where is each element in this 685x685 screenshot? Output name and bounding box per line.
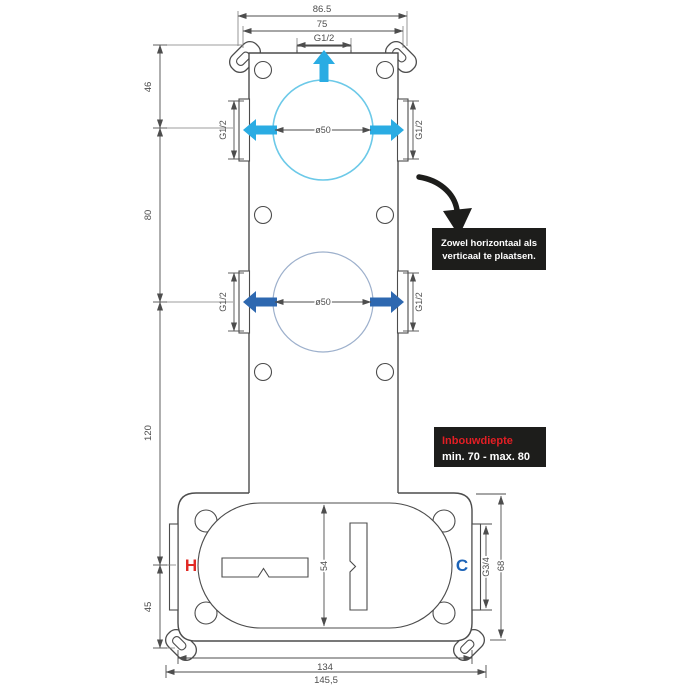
- depth-note-title: Inbouwdiepte: [442, 435, 513, 447]
- dim-box-inner-width: 134: [317, 662, 333, 673]
- dim-slot-height: 54: [319, 561, 329, 571]
- dim-46: 46: [143, 82, 154, 93]
- dim-80: 80: [143, 210, 154, 221]
- screw-hole: [255, 364, 272, 381]
- depth-note-range: min. 70 - max. 80: [442, 451, 530, 463]
- dim-upper-diameter: ø50: [315, 125, 331, 135]
- dim-lower-left-port: G1/2: [218, 292, 228, 312]
- dim-120: 120: [143, 425, 154, 441]
- screw-hole: [255, 207, 272, 224]
- screw-hole: [377, 62, 394, 79]
- dim-top-port: G1/2: [314, 33, 335, 44]
- dim-top-outer: 86.5: [313, 4, 332, 15]
- screw-hole: [377, 364, 394, 381]
- dim-right-port: G3/4: [481, 557, 491, 577]
- installation-diagram: 86.5 75 G1/2 46 80 120 45 ø50 G1/2: [0, 0, 685, 685]
- technical-drawing-page: 86.5 75 G1/2 46 80 120 45 ø50 G1/2: [0, 0, 685, 685]
- placement-note: Zowel horizontaal als verticaal te plaat…: [432, 228, 546, 270]
- dim-top-inner: 75: [317, 19, 328, 30]
- rotation-arrow: [419, 177, 472, 236]
- dim-45: 45: [143, 602, 154, 613]
- box-left-port-tab: [170, 524, 179, 610]
- cold-label: C: [456, 556, 468, 575]
- dim-box-outer-width: 145,5: [314, 675, 338, 685]
- screw-hole: [255, 62, 272, 79]
- placement-note-line1: Zowel horizontaal als: [441, 238, 537, 249]
- placement-note-bg: [432, 228, 546, 270]
- top-dimensions: 86.5 75 G1/2: [238, 4, 407, 50]
- dim-upper-left-port: G1/2: [218, 120, 228, 140]
- dim-lower-diameter: ø50: [315, 297, 331, 307]
- curved-arrow-shaft: [419, 177, 457, 210]
- unit-body: [249, 53, 398, 493]
- box-right-port-tab: [472, 524, 481, 610]
- dim-upper-right-port: G1/2: [414, 120, 424, 140]
- dim-lower-right-port: G1/2: [414, 292, 424, 312]
- depth-note: Inbouwdiepte min. 70 - max. 80: [434, 427, 546, 467]
- placement-note-line2: verticaal te plaatsen.: [442, 251, 535, 262]
- dim-box-height: 68: [496, 561, 507, 572]
- screw-hole: [377, 207, 394, 224]
- hot-label: H: [185, 556, 197, 575]
